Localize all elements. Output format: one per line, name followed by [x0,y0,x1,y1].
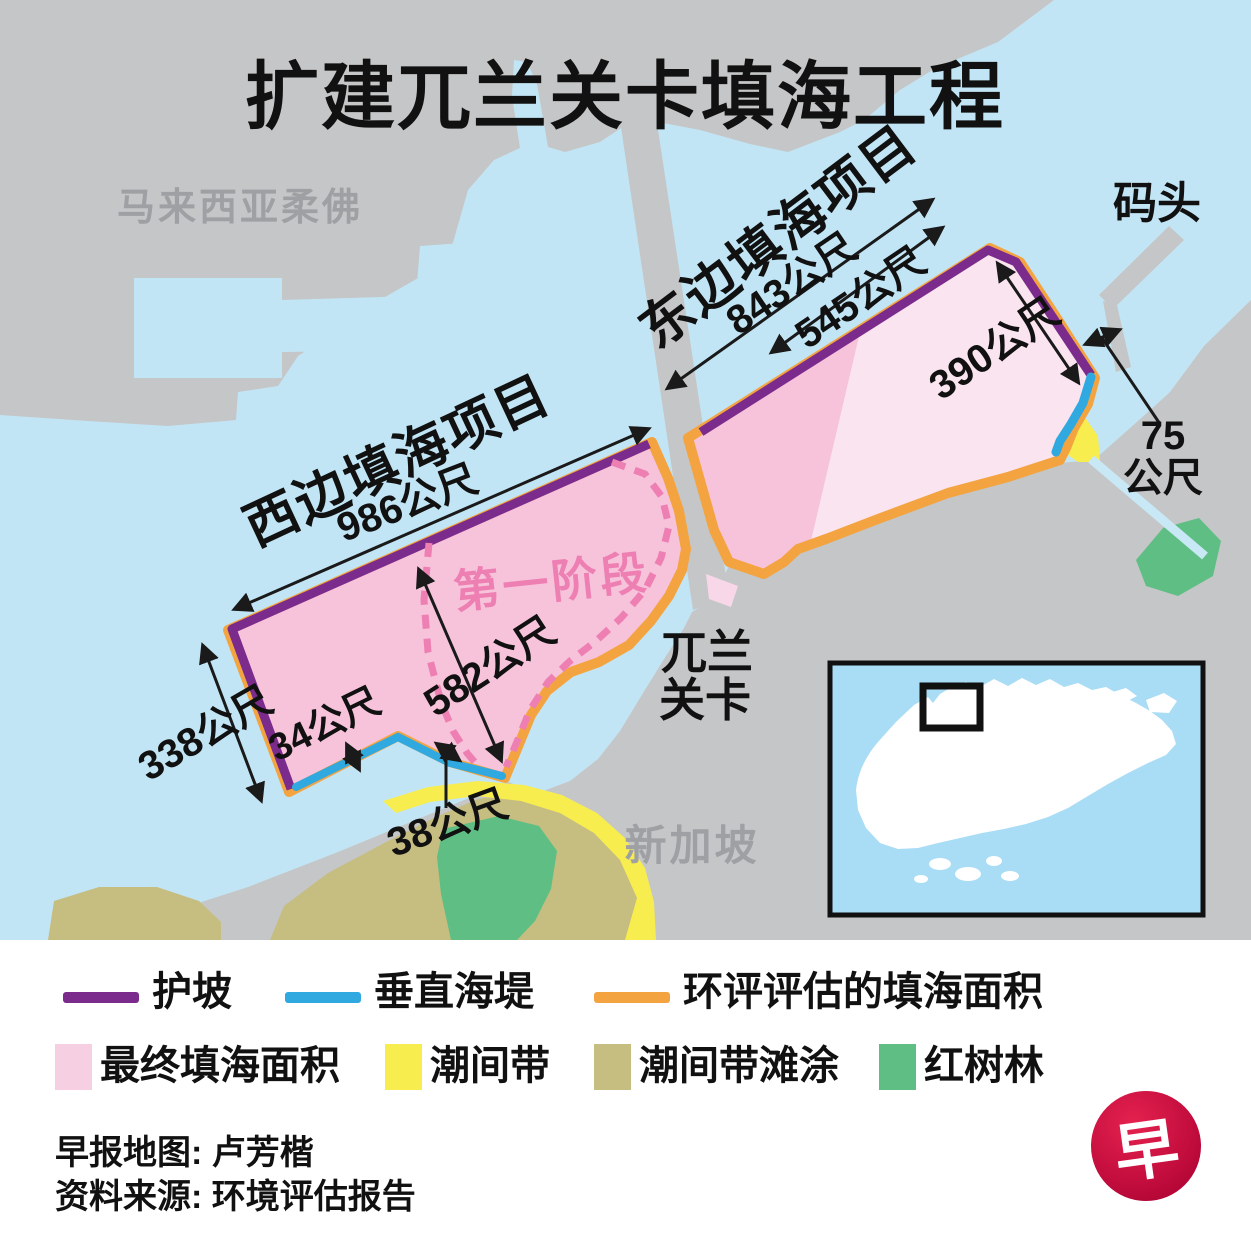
legend-line-seawall-label: 垂直海堤 [374,968,534,1016]
legend-area-mangrove-label: 红树林 [924,1042,1044,1090]
legend-line-revetment-label: 护坡 [152,968,232,1016]
infographic-canvas: 扩建兀兰关卡填海工程 马来西亚柔佛 码头 西边填海项目 东边填海项目 第一阶段 … [0,0,1251,1251]
pier-label: 码头 [1113,179,1201,228]
checkpoint-label-line1: 兀兰 [661,626,753,678]
inset-south-island [986,856,1002,866]
legend-line-eia-swatch [594,992,670,1003]
legend-area-intertidal-swatch [385,1044,422,1090]
legend: 护坡 垂直海堤 环评评估的填海面积 最终填海面积 潮间带 潮间带滩涂 红树林 早… [0,940,1251,1251]
harbour-bay [134,278,282,378]
legend-area-intertidal-label: 潮间带 [430,1042,550,1090]
legend-area-mudflat-label: 潮间带滩涂 [639,1042,839,1090]
legend-area-mudflat-swatch [594,1044,631,1090]
inset-south-island [1001,871,1019,881]
inset-south-island [914,875,928,883]
legend-area-final-swatch [55,1044,92,1090]
malaysia-label: 马来西亚柔佛 [117,187,363,229]
legend-area-final-label: 最终填海面积 [100,1042,340,1090]
measure-75m-value: 75 [1141,414,1186,458]
source-credit: 资料来源: 环境评估报告 [55,1169,416,1218]
legend-line-seawall-swatch [285,992,361,1003]
inset-south-island [929,858,951,870]
measure-75m-unit: 公尺 [1123,456,1203,500]
map-credit: 早报地图: 卢芳楷 [55,1125,314,1174]
legend-area-mangrove-swatch [879,1044,916,1090]
singapore-label: 新加坡 [624,822,759,869]
legend-line-revetment-swatch [63,992,139,1003]
map: 扩建兀兰关卡填海工程 马来西亚柔佛 码头 西边填海项目 东边填海项目 第一阶段 … [0,0,1251,940]
checkpoint-label-line2: 关卡 [659,674,751,726]
zaobao-logo: 早 [1091,1091,1201,1201]
zaobao-logo-glyph: 早 [1108,1096,1184,1196]
legend-line-eia-label: 环评评估的填海面积 [683,968,1043,1016]
inset-south-island [955,867,981,881]
map-svg: 扩建兀兰关卡填海工程 马来西亚柔佛 码头 西边填海项目 东边填海项目 第一阶段 … [0,0,1251,940]
inset-map [830,663,1203,915]
